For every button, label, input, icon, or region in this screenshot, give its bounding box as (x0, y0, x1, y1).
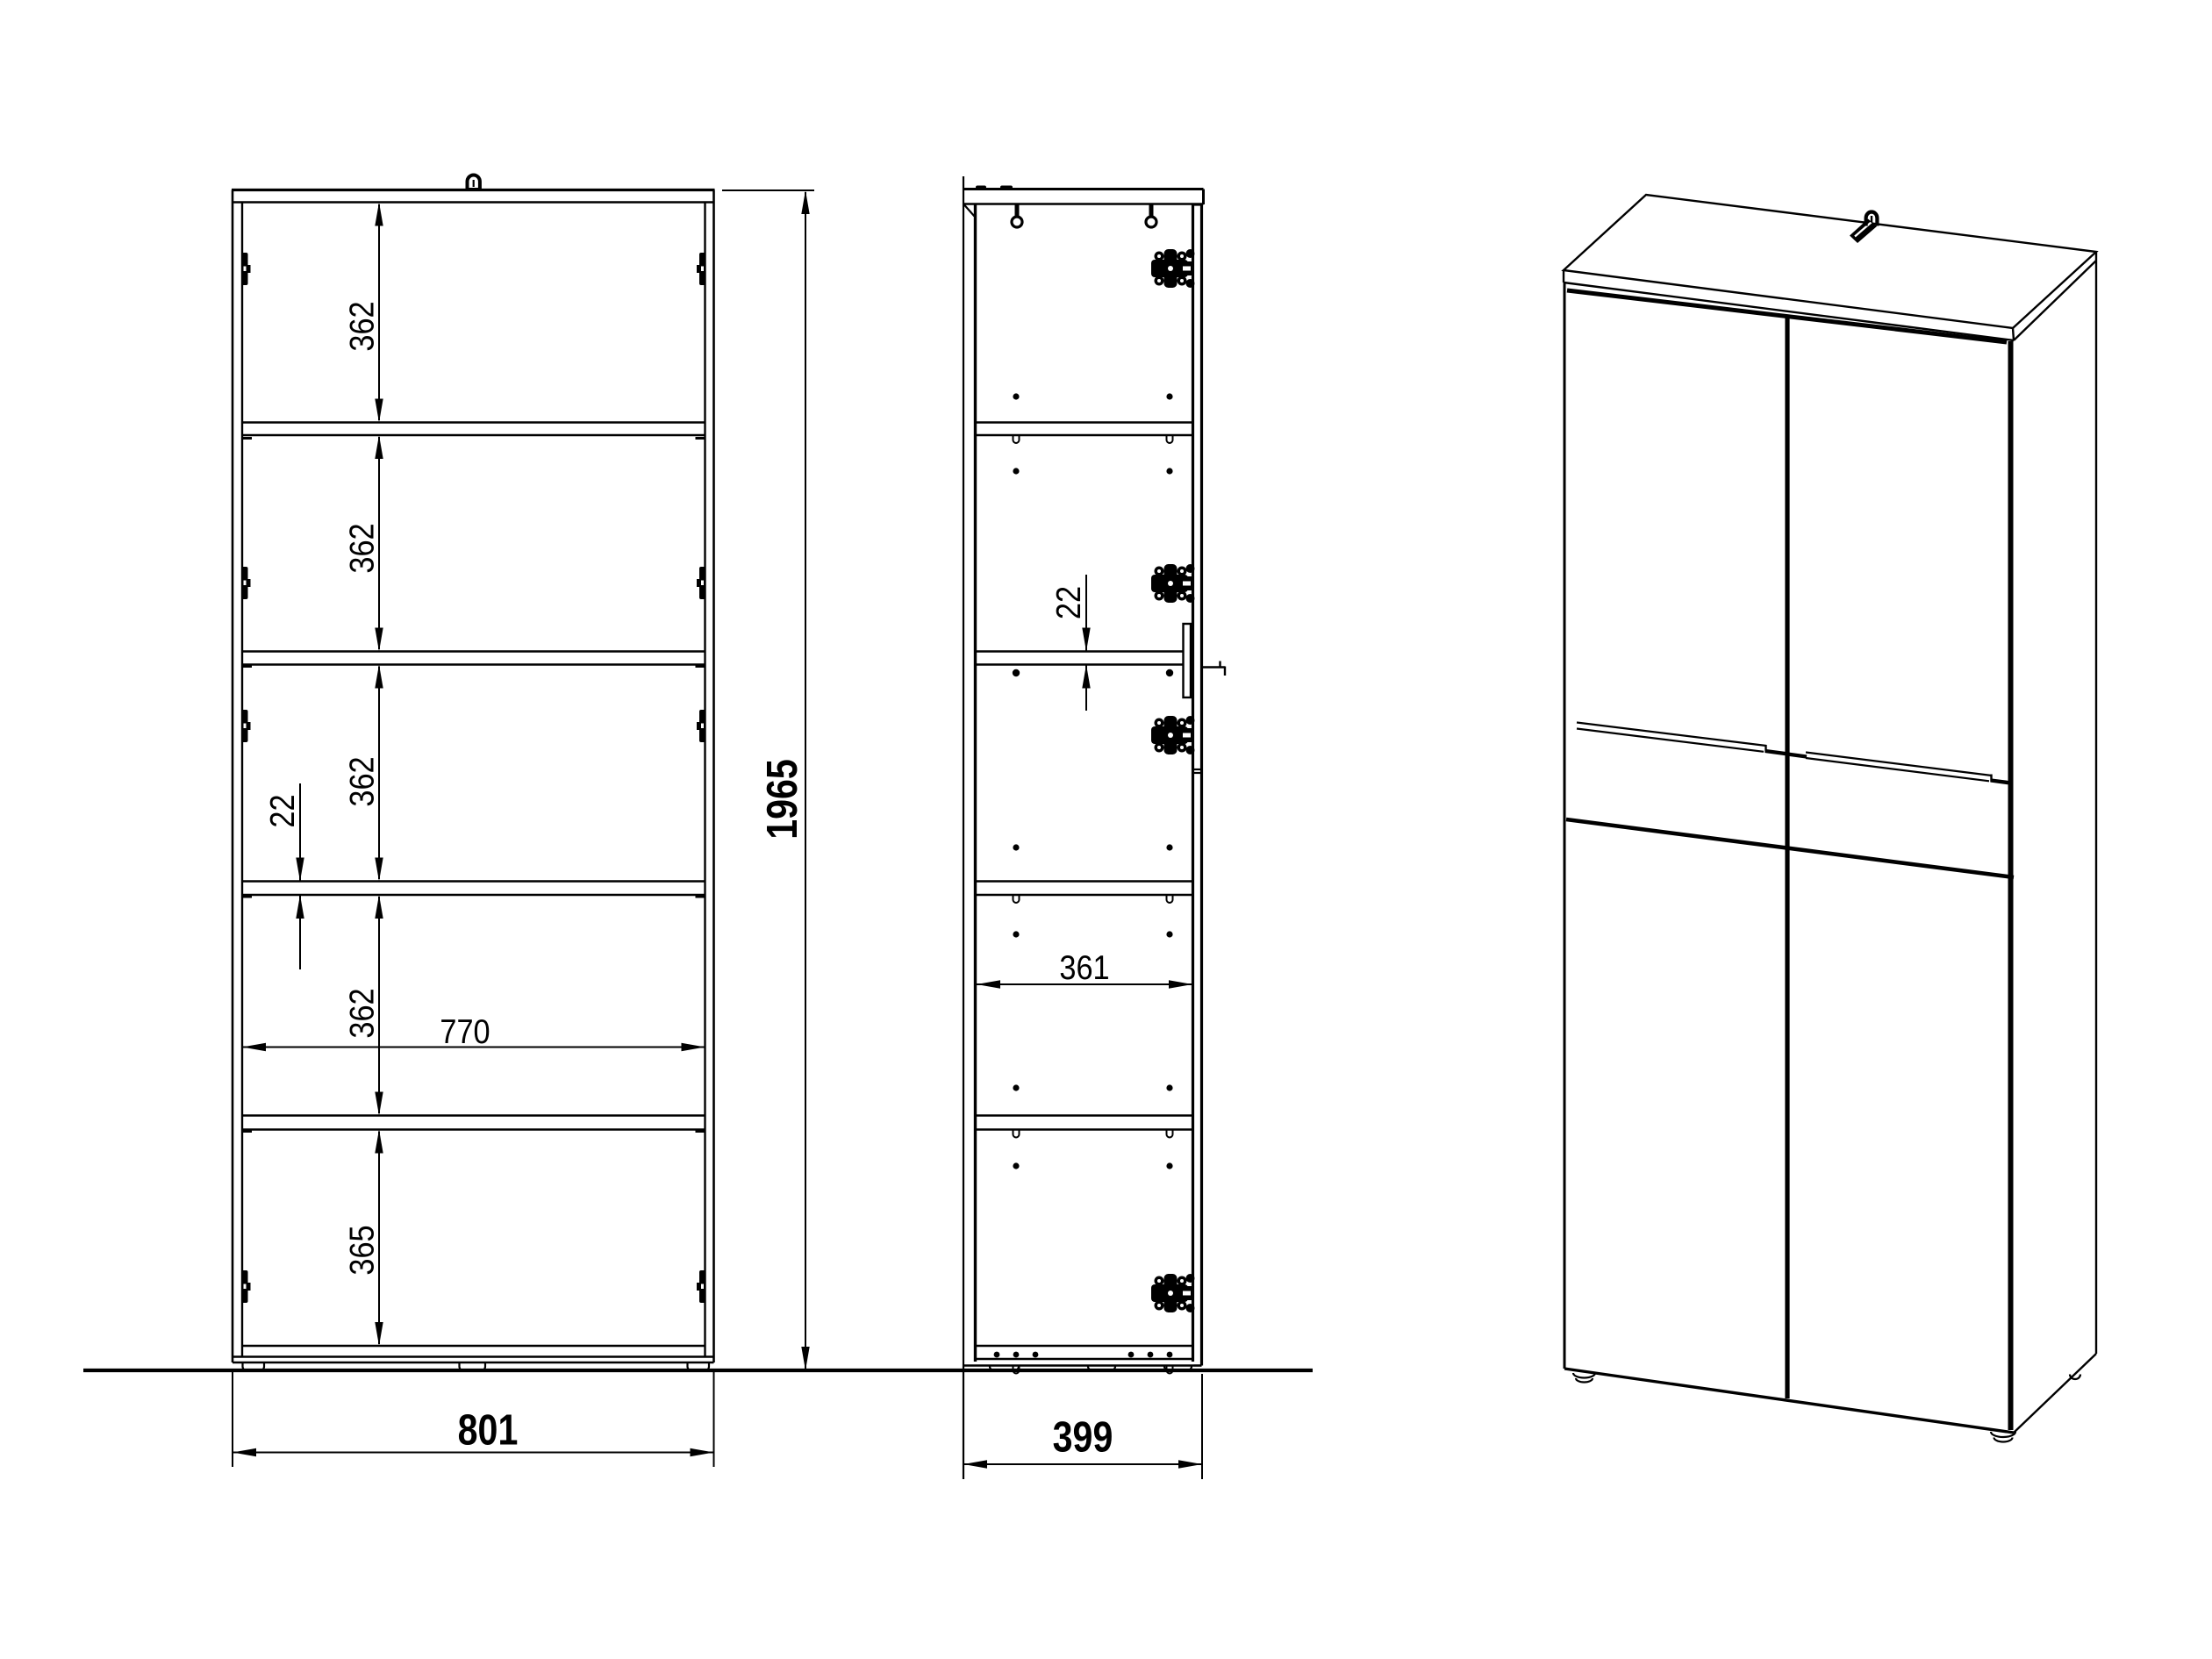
svg-text:770: 770 (440, 1012, 490, 1051)
svg-text:22: 22 (1049, 586, 1088, 619)
svg-text:399: 399 (1053, 1412, 1113, 1461)
svg-text:365: 365 (342, 1225, 381, 1275)
svg-text:361: 361 (1059, 948, 1109, 987)
svg-text:362: 362 (342, 301, 381, 351)
svg-text:22: 22 (263, 794, 302, 827)
svg-text:1965: 1965 (758, 759, 806, 840)
svg-text:362: 362 (342, 988, 381, 1038)
svg-text:801: 801 (458, 1405, 519, 1454)
svg-text:362: 362 (342, 756, 381, 806)
svg-text:362: 362 (342, 523, 381, 573)
